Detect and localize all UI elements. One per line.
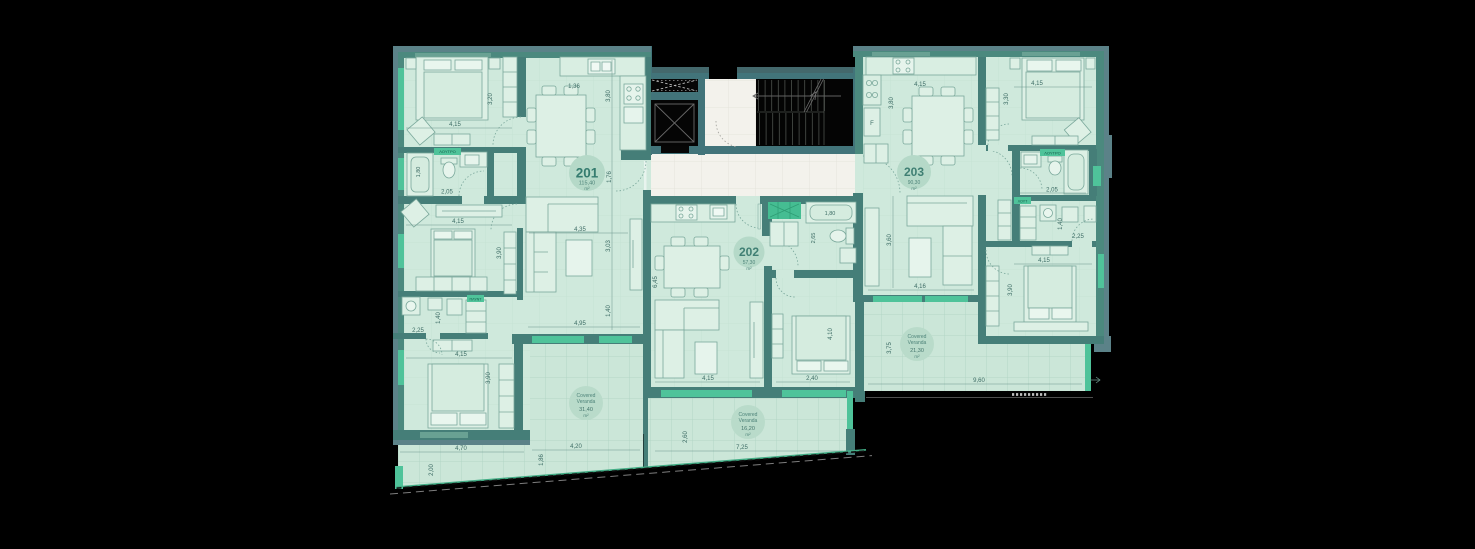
svg-text:ΛΟΥΤ: ΛΟΥΤ — [1018, 199, 1028, 203]
svg-text:2,65: 2,65 — [811, 233, 817, 244]
svg-text:2,60: 2,60 — [683, 431, 689, 443]
svg-text:4,95: 4,95 — [574, 321, 586, 327]
svg-text:3,75: 3,75 — [887, 342, 893, 354]
svg-text:4,10: 4,10 — [828, 328, 834, 340]
svg-text:4,15: 4,15 — [1031, 81, 1043, 87]
svg-text:2,25: 2,25 — [412, 328, 424, 334]
svg-text:1,86: 1,86 — [539, 454, 545, 466]
svg-text:1,40: 1,40 — [1058, 218, 1064, 230]
svg-text:m²: m² — [911, 186, 917, 191]
svg-text:1,40: 1,40 — [436, 312, 442, 324]
svg-text:3,90: 3,90 — [497, 247, 503, 259]
svg-text:3,03: 3,03 — [606, 240, 612, 252]
svg-text:3,60: 3,60 — [887, 234, 893, 246]
svg-text:4,15: 4,15 — [452, 219, 464, 225]
svg-text:4,15: 4,15 — [702, 376, 714, 382]
svg-text:m²: m² — [745, 432, 751, 437]
svg-text:1,76: 1,76 — [607, 171, 613, 183]
svg-text:4,20: 4,20 — [570, 444, 582, 450]
svg-text:4,15: 4,15 — [449, 122, 461, 128]
svg-text:3,30: 3,30 — [1004, 93, 1010, 105]
svg-text:1,80: 1,80 — [825, 211, 836, 217]
svg-text:m²: m² — [583, 413, 589, 418]
svg-text:m²: m² — [584, 186, 590, 191]
svg-text:1,80: 1,80 — [416, 167, 422, 178]
svg-text:ΛΟΥΤΡΟ: ΛΟΥΤΡΟ — [1044, 150, 1060, 155]
svg-text:3,80: 3,80 — [606, 90, 612, 102]
svg-text:4,15: 4,15 — [914, 82, 926, 88]
svg-text:2,00: 2,00 — [429, 464, 435, 476]
svg-text:201: 201 — [576, 166, 599, 181]
svg-text:4,16: 4,16 — [914, 284, 926, 290]
svg-text:3,90: 3,90 — [486, 372, 492, 384]
svg-text:2,05: 2,05 — [1046, 188, 1058, 194]
svg-text:ΛΟΥΤΡΟ: ΛΟΥΤΡΟ — [439, 149, 455, 154]
svg-text:6,45: 6,45 — [653, 276, 659, 288]
svg-text:2,40: 2,40 — [806, 376, 818, 382]
svg-text:ΠΛΥΝΤ: ΠΛΥΝΤ — [470, 297, 483, 301]
svg-text:4,15: 4,15 — [1038, 258, 1050, 264]
svg-text:Veranda: Veranda — [739, 418, 758, 424]
svg-text:3,80: 3,80 — [889, 97, 895, 109]
svg-text:7,25: 7,25 — [736, 445, 748, 451]
svg-text:1,40: 1,40 — [606, 305, 612, 317]
svg-text:m²: m² — [746, 266, 752, 271]
svg-text:4,15: 4,15 — [455, 352, 467, 358]
svg-text:2,05: 2,05 — [441, 190, 453, 196]
svg-text:3,90: 3,90 — [1008, 284, 1014, 296]
svg-text:Veranda: Veranda — [577, 399, 596, 405]
svg-text:1,36: 1,36 — [568, 84, 580, 90]
svg-text:4,35: 4,35 — [574, 227, 586, 233]
svg-text:2,25: 2,25 — [1072, 234, 1084, 240]
svg-text:m²: m² — [914, 354, 920, 359]
svg-text:Veranda: Veranda — [908, 340, 927, 346]
svg-text:3,20: 3,20 — [488, 93, 494, 105]
svg-text:9,60: 9,60 — [973, 378, 985, 384]
svg-text:202: 202 — [739, 245, 759, 259]
svg-text:203: 203 — [904, 165, 924, 179]
svg-text:F: F — [870, 121, 874, 127]
svg-text:4,70: 4,70 — [455, 446, 467, 452]
